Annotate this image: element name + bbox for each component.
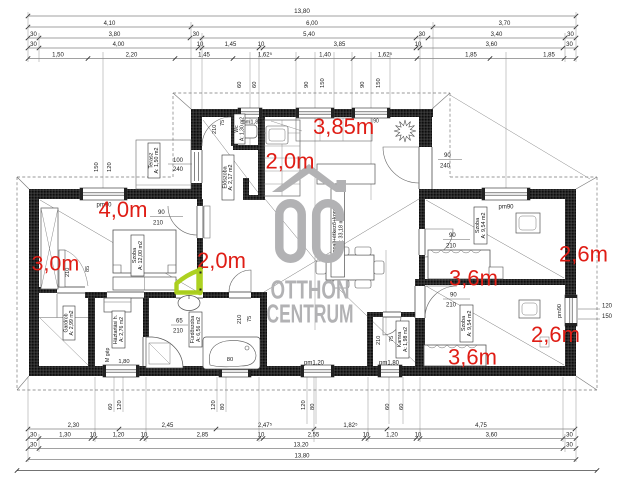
svg-text:1,20: 1,20 bbox=[386, 433, 398, 439]
svg-text:30: 30 bbox=[567, 32, 574, 38]
svg-text:90: 90 bbox=[449, 233, 456, 239]
svg-text:A: 1,98 m2: A: 1,98 m2 bbox=[403, 327, 409, 352]
svg-text:2,0m: 2,0m bbox=[266, 149, 315, 174]
svg-text:2,0m: 2,0m bbox=[197, 248, 246, 273]
svg-text:A: 1,50 m2: A: 1,50 m2 bbox=[154, 147, 160, 173]
svg-text:210: 210 bbox=[153, 221, 164, 227]
svg-text:1,45: 1,45 bbox=[198, 53, 210, 59]
svg-text:1,62⁵: 1,62⁵ bbox=[258, 52, 273, 59]
svg-text:Szoba: Szoba bbox=[132, 248, 138, 263]
svg-text:30: 30 bbox=[566, 443, 573, 449]
svg-text:30: 30 bbox=[30, 42, 37, 48]
svg-text:A: 9,54 m2: A: 9,54 m2 bbox=[481, 212, 487, 238]
svg-text:Szoba: Szoba bbox=[475, 218, 481, 233]
svg-text:120: 120 bbox=[211, 400, 217, 410]
svg-text:60: 60 bbox=[252, 82, 258, 88]
svg-text:2,45: 2,45 bbox=[162, 423, 174, 429]
svg-text:10: 10 bbox=[90, 433, 97, 439]
svg-text:120: 120 bbox=[301, 400, 307, 410]
svg-text:30: 30 bbox=[566, 433, 573, 439]
svg-text:A: 2,17 m2: A: 2,17 m2 bbox=[228, 164, 234, 190]
svg-text:150: 150 bbox=[602, 314, 613, 320]
svg-text:120: 120 bbox=[117, 400, 123, 410]
svg-text:60: 60 bbox=[385, 404, 391, 410]
svg-text:3,80: 3,80 bbox=[109, 32, 121, 38]
svg-text:90: 90 bbox=[158, 210, 165, 216]
svg-text:A: 2,99 m2: A: 2,99 m2 bbox=[69, 310, 75, 335]
svg-text:1,30: 1,30 bbox=[59, 433, 71, 439]
svg-text:3,6m: 3,6m bbox=[449, 266, 498, 291]
svg-text:pm90: pm90 bbox=[498, 205, 514, 211]
svg-text:210: 210 bbox=[446, 303, 457, 309]
svg-text:Fürdőszoba: Fürdőszoba bbox=[190, 316, 196, 344]
svg-text:pm1,80: pm1,80 bbox=[242, 120, 261, 126]
svg-text:90: 90 bbox=[444, 153, 451, 159]
svg-text:2,47⁵: 2,47⁵ bbox=[258, 422, 273, 429]
svg-text:pm90: pm90 bbox=[557, 304, 563, 318]
svg-text:Szoba: Szoba bbox=[461, 316, 467, 331]
svg-text:30: 30 bbox=[30, 443, 37, 449]
svg-text:90: 90 bbox=[450, 293, 457, 299]
svg-text:A: 12,00 m2: A: 12,00 m2 bbox=[138, 241, 144, 270]
svg-text:3,6m: 3,6m bbox=[448, 345, 497, 370]
svg-text:80: 80 bbox=[220, 404, 226, 410]
svg-text:1,82⁵: 1,82⁵ bbox=[343, 422, 358, 429]
svg-text:60: 60 bbox=[399, 404, 405, 410]
svg-text:5,40: 5,40 bbox=[303, 32, 315, 38]
svg-text:210: 210 bbox=[376, 336, 382, 345]
svg-text:CENTRUM: CENTRUM bbox=[266, 299, 353, 328]
svg-text:150: 150 bbox=[320, 78, 326, 88]
svg-text:30: 30 bbox=[193, 32, 200, 38]
svg-text:60: 60 bbox=[108, 404, 114, 410]
svg-text:10: 10 bbox=[363, 433, 370, 439]
svg-text:4,0m: 4,0m bbox=[99, 197, 148, 222]
svg-text:150: 150 bbox=[94, 162, 100, 172]
svg-text:30: 30 bbox=[30, 433, 37, 439]
svg-text:3,70: 3,70 bbox=[499, 21, 511, 27]
svg-text:1,50: 1,50 bbox=[52, 53, 64, 59]
svg-text:13,20: 13,20 bbox=[293, 443, 309, 449]
svg-text:3,60: 3,60 bbox=[486, 42, 498, 48]
svg-text:10: 10 bbox=[258, 42, 265, 48]
svg-text:150: 150 bbox=[376, 78, 382, 88]
svg-text:75: 75 bbox=[389, 336, 395, 342]
svg-text:4,10: 4,10 bbox=[104, 21, 116, 27]
svg-text:10: 10 bbox=[197, 42, 204, 48]
svg-text:30: 30 bbox=[30, 32, 37, 38]
svg-text:80: 80 bbox=[310, 404, 316, 410]
svg-text:2,6m: 2,6m bbox=[559, 242, 608, 267]
svg-text:65: 65 bbox=[176, 319, 183, 325]
svg-text:100: 100 bbox=[173, 158, 184, 164]
svg-text:90: 90 bbox=[360, 82, 366, 88]
svg-text:60: 60 bbox=[237, 82, 243, 88]
svg-text:3,85: 3,85 bbox=[334, 42, 346, 48]
svg-text:75: 75 bbox=[220, 120, 226, 126]
svg-text:pm1,80: pm1,80 bbox=[379, 361, 400, 367]
svg-text:3,0m: 3,0m bbox=[32, 252, 80, 276]
svg-text:3,40: 3,40 bbox=[491, 32, 503, 38]
svg-text:3,60: 3,60 bbox=[486, 433, 498, 439]
svg-text:13,80: 13,80 bbox=[294, 454, 310, 460]
svg-text:2,6m: 2,6m bbox=[531, 322, 580, 347]
svg-text:10: 10 bbox=[258, 433, 265, 439]
svg-text:210: 210 bbox=[446, 244, 457, 250]
svg-text:120: 120 bbox=[107, 162, 113, 172]
svg-text:10: 10 bbox=[415, 42, 422, 48]
svg-text:240: 240 bbox=[173, 167, 184, 173]
svg-text:90: 90 bbox=[304, 82, 310, 88]
svg-text:210: 210 bbox=[212, 125, 218, 134]
svg-text:10: 10 bbox=[415, 433, 422, 439]
svg-text:1,85: 1,85 bbox=[465, 53, 477, 59]
svg-text:A: 9,54 m2: A: 9,54 m2 bbox=[467, 310, 473, 336]
svg-text:4,00: 4,00 bbox=[113, 42, 125, 48]
svg-text:1,40: 1,40 bbox=[319, 53, 331, 59]
svg-text:240: 240 bbox=[440, 164, 451, 170]
svg-text:13,80: 13,80 bbox=[294, 8, 310, 15]
svg-text:30: 30 bbox=[566, 42, 573, 48]
svg-text:6,00: 6,00 bbox=[306, 21, 318, 27]
svg-text:1,80: 1,80 bbox=[118, 359, 129, 365]
svg-text:1,20: 1,20 bbox=[113, 433, 125, 439]
svg-text:2,20: 2,20 bbox=[126, 53, 138, 59]
svg-text:Háztartási h.: Háztartási h. bbox=[113, 315, 119, 344]
svg-text:210: 210 bbox=[237, 315, 243, 324]
svg-text:2,30: 2,30 bbox=[68, 423, 80, 429]
svg-text:30: 30 bbox=[419, 32, 426, 38]
svg-text:A: 6,56 m2: A: 6,56 m2 bbox=[196, 317, 202, 342]
svg-text:210: 210 bbox=[173, 329, 184, 335]
svg-text:4,75: 4,75 bbox=[475, 423, 487, 429]
svg-text:pm1,20: pm1,20 bbox=[304, 361, 325, 367]
svg-text:M gép: M gép bbox=[105, 347, 111, 362]
svg-text:2,85: 2,85 bbox=[197, 433, 209, 439]
svg-text:120: 120 bbox=[602, 304, 613, 310]
svg-text:1,62⁵: 1,62⁵ bbox=[378, 52, 393, 59]
svg-text:3,85m: 3,85m bbox=[313, 114, 374, 139]
svg-text:1,45: 1,45 bbox=[225, 42, 237, 48]
svg-text:1,85: 1,85 bbox=[543, 53, 555, 59]
svg-text:Kamra: Kamra bbox=[397, 332, 403, 347]
svg-text:85: 85 bbox=[85, 266, 91, 272]
svg-text:80: 80 bbox=[227, 357, 233, 363]
svg-text:10: 10 bbox=[141, 433, 148, 439]
svg-text:A: 2,76 m2: A: 2,76 m2 bbox=[119, 317, 125, 342]
svg-text:75: 75 bbox=[247, 316, 253, 322]
